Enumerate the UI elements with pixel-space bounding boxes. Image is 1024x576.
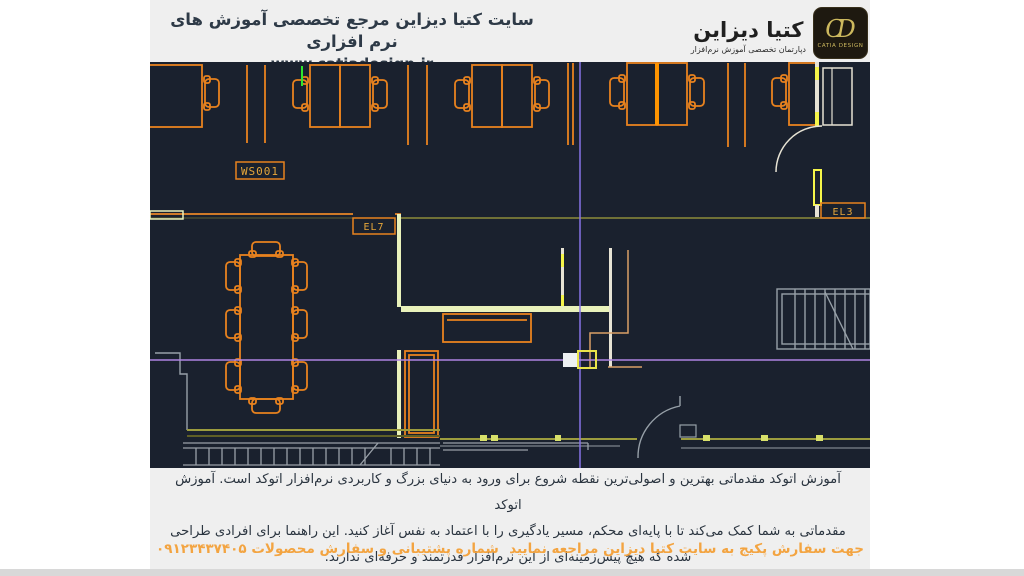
walls bbox=[150, 62, 870, 438]
crosshair-cursor[interactable] bbox=[150, 62, 870, 468]
bottom-edge-bar bbox=[0, 569, 1024, 576]
footer-notes: جهت سفارش پکیج به سایت کتیا دیزاین مراجع… bbox=[156, 541, 864, 557]
autocad-drawing-area[interactable]: WS001 EL7 EL3 bbox=[150, 62, 870, 468]
order-note: جهت سفارش پکیج به سایت کتیا دیزاین مراجع… bbox=[509, 541, 864, 557]
page-title: سایت کتیا دیزاین مرجع تخصصی آموزش های نر… bbox=[162, 9, 542, 54]
brand-logo: کتیا دیزاین دپارتمان تخصصی آموزش نرم‌افز… bbox=[691, 6, 868, 60]
cabinets bbox=[405, 314, 531, 437]
door-arc-top-right bbox=[776, 126, 822, 172]
logo-badge: CD CATIA DESIGN bbox=[813, 7, 868, 59]
stairs bbox=[777, 289, 870, 349]
cd-monogram-icon: CD bbox=[825, 17, 856, 41]
floor-plan-canvas[interactable]: WS001 EL7 EL3 bbox=[150, 62, 870, 468]
label-ws001: WS001 bbox=[241, 165, 279, 178]
bottom-walls bbox=[155, 353, 870, 458]
bright-partition bbox=[655, 63, 659, 125]
label-el3: EL3 bbox=[832, 207, 853, 218]
room-labels: WS001 EL7 EL3 bbox=[236, 162, 865, 234]
conference-table bbox=[226, 242, 307, 413]
pickbox bbox=[563, 353, 577, 367]
badge-caption: CATIA DESIGN bbox=[817, 43, 863, 49]
workstation-desks bbox=[150, 63, 817, 147]
logo-wordmark: کتیا دیزاین bbox=[691, 18, 806, 42]
door-arc-bottom bbox=[638, 396, 680, 458]
content-panel: سایت کتیا دیزاین مرجع تخصصی آموزش های نر… bbox=[150, 0, 870, 576]
support-phone-note: شماره پشتیبانی و سفارش محصولات ۰۹۱۲۳۴۳۷۴… bbox=[156, 541, 499, 557]
paragraph-line-1: آموزش اتوکد مقدماتی بهترین و اصولی‌ترین … bbox=[160, 467, 856, 519]
door-jamb bbox=[814, 170, 821, 205]
logo-subtitle: دپارتمان تخصصی آموزش نرم‌افزار bbox=[691, 45, 806, 54]
label-el7: EL7 bbox=[363, 222, 384, 233]
logo-wordmark-block: کتیا دیزاین دپارتمان تخصصی آموزش نرم‌افز… bbox=[691, 12, 806, 54]
